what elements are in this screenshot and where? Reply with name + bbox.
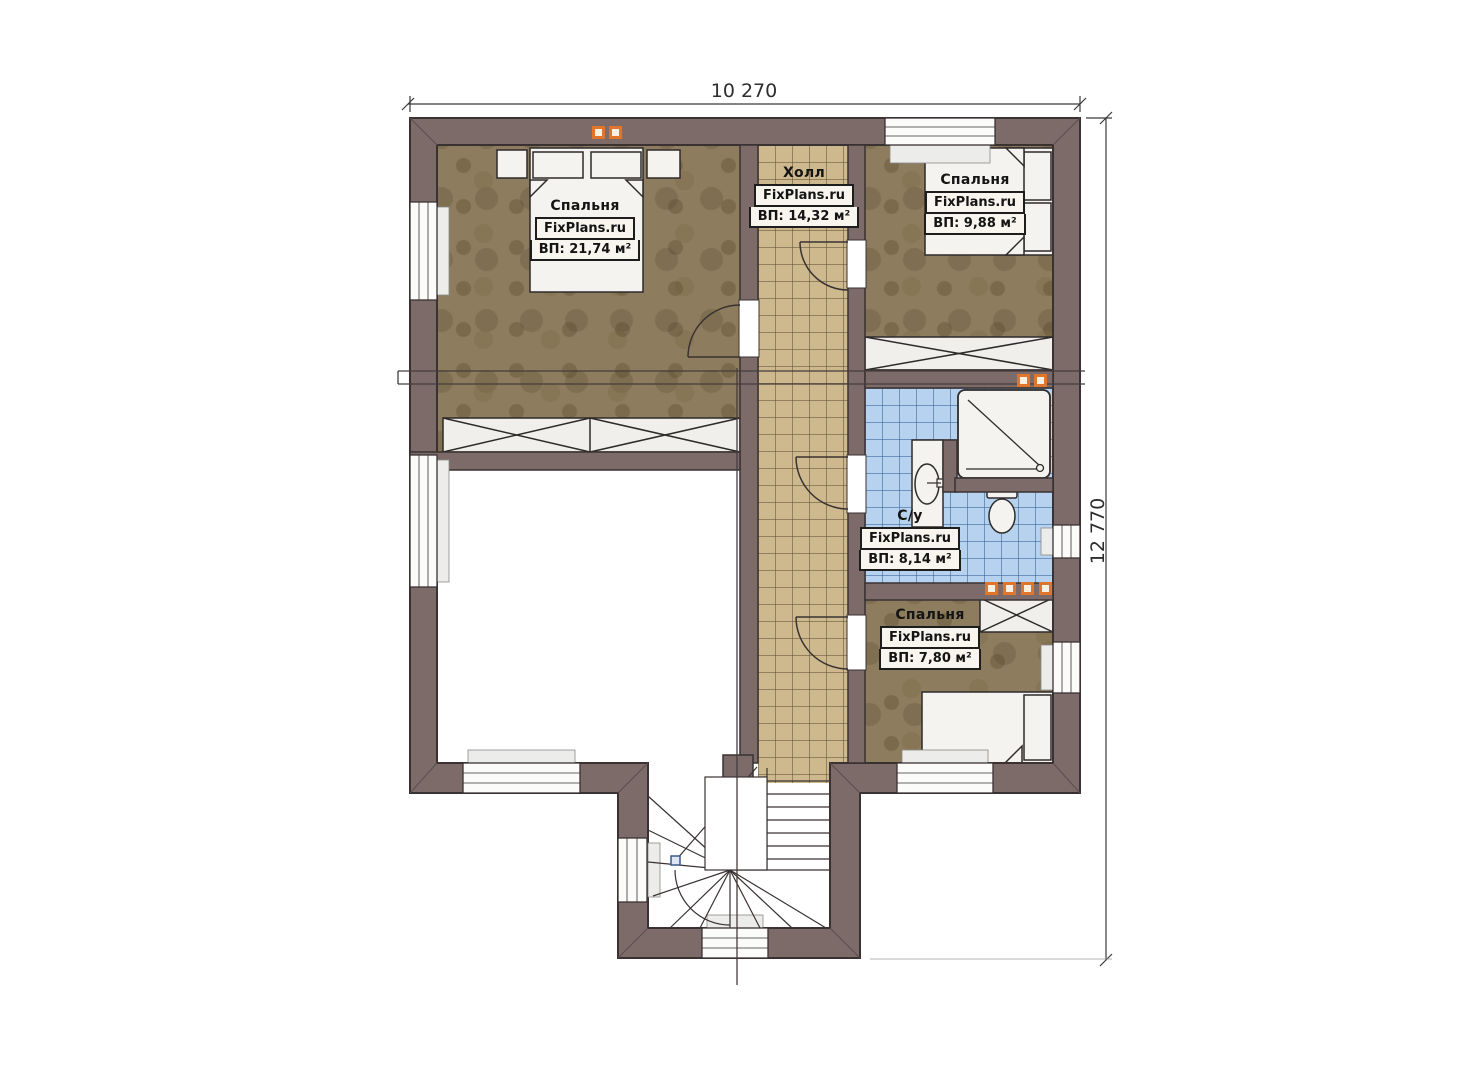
wardrobe-2 xyxy=(865,337,1053,370)
area-box: ВП: 14,32 м² xyxy=(749,207,859,228)
watermark-box: FixPlans.ru xyxy=(880,626,980,649)
watermark-box: FixPlans.ru xyxy=(860,527,960,550)
room-label-hall: Холл FixPlans.ru ВП: 14,32 м² xyxy=(744,165,864,228)
vent-marker xyxy=(1039,582,1052,595)
room-name: Спальня xyxy=(940,172,1009,188)
wardrobe-master xyxy=(443,418,740,452)
room-name: Спальня xyxy=(895,607,964,623)
room-label-bedroom-master: Спальня FixPlans.ru ВП: 21,74 м² xyxy=(510,198,660,261)
staircase xyxy=(648,767,830,928)
room-label-bathroom: С/у FixPlans.ru ВП: 8,14 м² xyxy=(845,508,975,571)
vent-marker xyxy=(592,126,605,139)
vent-marker xyxy=(985,582,998,595)
room-name: С/у xyxy=(897,508,922,524)
area-box: ВП: 7,80 м² xyxy=(879,649,980,670)
floor-plan-canvas: Спальня FixPlans.ru ВП: 21,74 м² Холл Fi… xyxy=(0,0,1473,1080)
shower xyxy=(958,390,1050,478)
vent-marker xyxy=(609,126,622,139)
dimension-width-label: 10 270 xyxy=(684,80,804,102)
plan-drawing xyxy=(0,0,1473,1080)
toilet xyxy=(987,486,1017,533)
watermark-box: FixPlans.ru xyxy=(925,191,1025,214)
area-box: ВП: 9,88 м² xyxy=(924,214,1025,235)
room-label-bedroom-3: Спальня FixPlans.ru ВП: 7,80 м² xyxy=(860,607,1000,670)
area-box: ВП: 8,14 м² xyxy=(859,550,960,571)
room-label-bedroom-2: Спальня FixPlans.ru ВП: 9,88 м² xyxy=(905,172,1045,235)
vent-marker xyxy=(1003,582,1016,595)
vent-marker xyxy=(1034,374,1047,387)
room-name: Холл xyxy=(783,165,825,181)
watermark-box: FixPlans.ru xyxy=(754,184,854,207)
area-box: ВП: 21,74 м² xyxy=(530,240,640,261)
room-name: Спальня xyxy=(550,198,619,214)
vent-marker xyxy=(1021,582,1034,595)
vent-marker xyxy=(1017,374,1030,387)
dimension-height-label: 12 770 xyxy=(1087,496,1109,566)
watermark-box: FixPlans.ru xyxy=(535,217,635,240)
